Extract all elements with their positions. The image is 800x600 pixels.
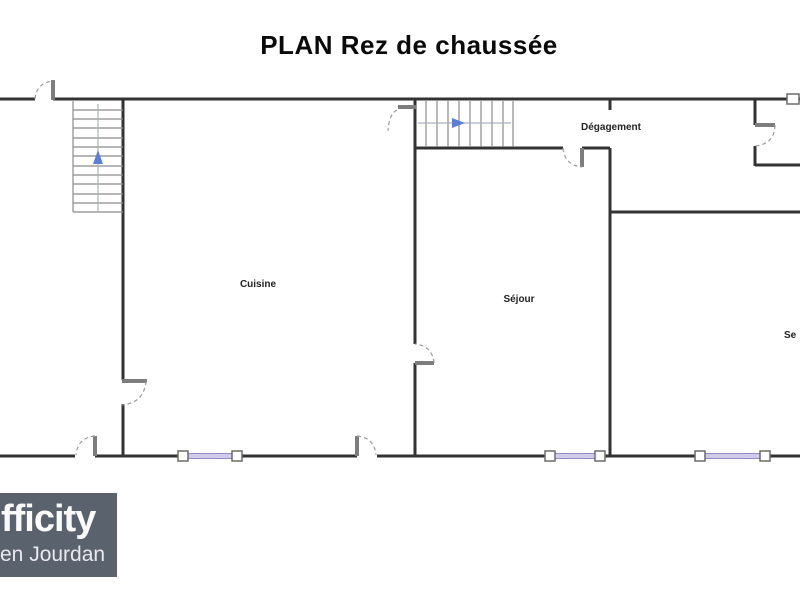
top-right-window-end — [787, 94, 799, 104]
cuisine-left-door-arc — [122, 381, 146, 405]
window-1-end-right — [232, 451, 242, 461]
agency-logo-agent-text: en Jourdan — [0, 543, 105, 567]
stair-direction-arrow-up-icon — [93, 150, 103, 164]
floor-plan-page: PLAN Rez de chaussée — [0, 0, 800, 600]
corner-room-door-arc — [755, 125, 775, 146]
window-2-band — [553, 454, 597, 459]
window-1-band — [186, 454, 234, 459]
room-label-partial-right: Se — [784, 330, 800, 341]
window-2-end-right — [595, 451, 605, 461]
window-2-end-left — [545, 451, 555, 461]
agency-logo-brand-text: fficity — [1, 494, 95, 544]
walls — [0, 99, 800, 456]
window-3-end-right — [760, 451, 770, 461]
room-label-degagement: Dégagement — [561, 122, 661, 133]
staircase-left — [73, 101, 123, 212]
window-3-band — [703, 454, 762, 459]
floor-plan-drawing — [0, 0, 800, 600]
corridor-south-door-arc — [563, 148, 582, 167]
corridor-west-door-arc — [388, 110, 397, 131]
window-1-end-left — [178, 451, 188, 461]
bottom-left-door-arc — [76, 436, 95, 455]
window-3-end-left — [695, 451, 705, 461]
bottom-middle-door-arc — [357, 436, 376, 455]
agency-logo: fficity en Jourdan — [0, 493, 117, 577]
doors — [35, 80, 775, 456]
room-label-sejour: Séjour — [479, 294, 559, 305]
cuisine-sejour-door-arc — [415, 344, 434, 363]
room-label-cuisine: Cuisine — [218, 279, 298, 290]
staircase-corridor — [418, 101, 513, 147]
entrance-door-arc — [35, 81, 53, 99]
